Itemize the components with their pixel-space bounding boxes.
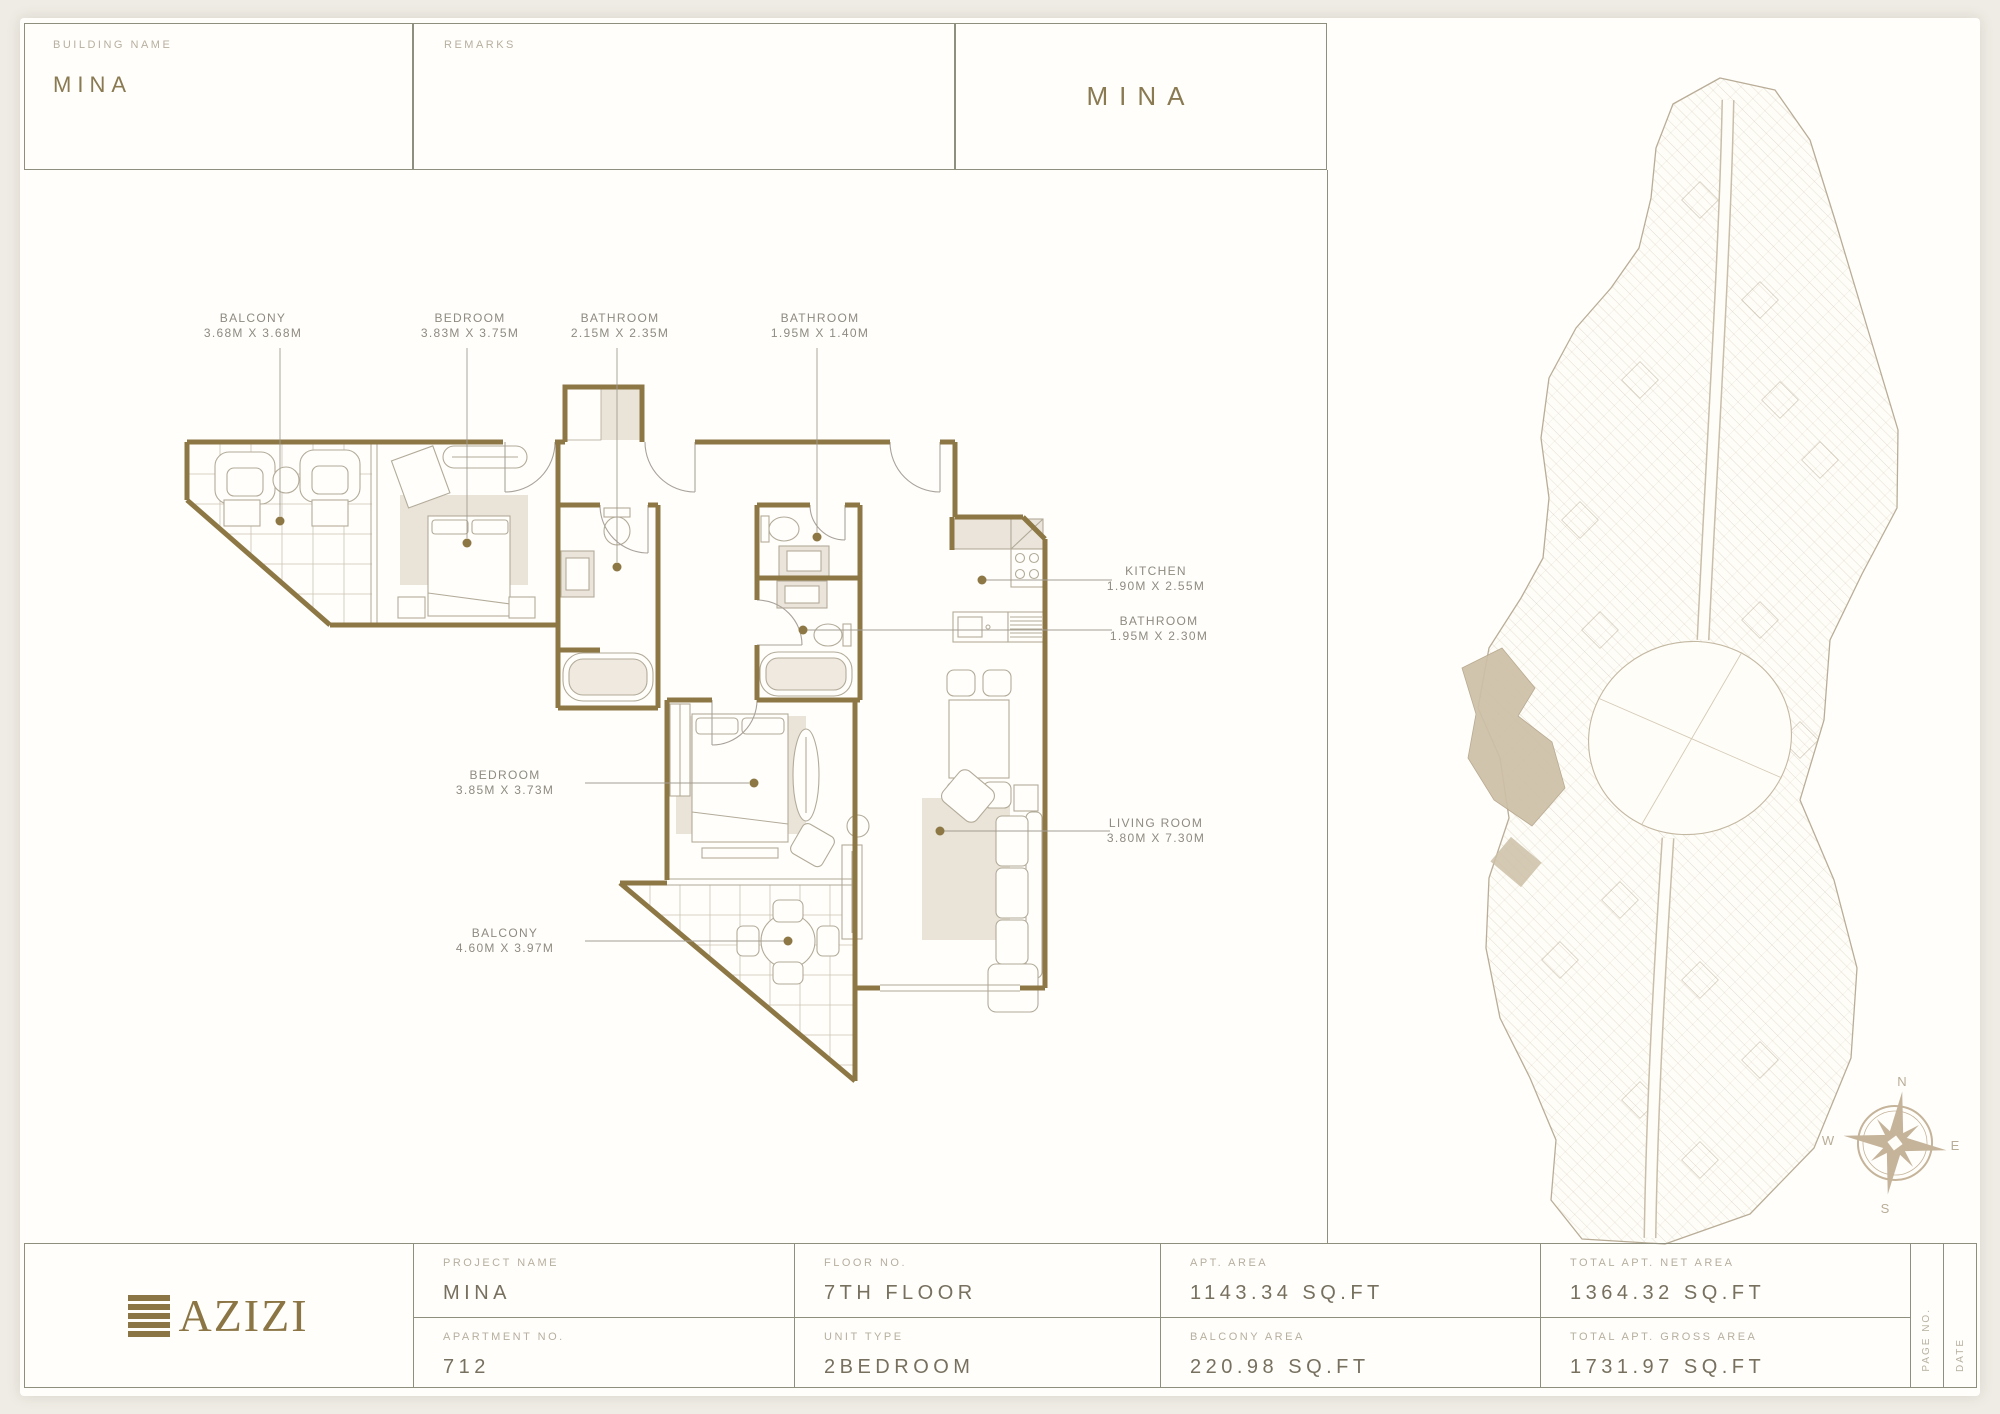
total-net-label: TOTAL APT. NET AREA (1570, 1257, 1734, 1269)
total-gross-label: TOTAL APT. GROSS AREA (1570, 1331, 1757, 1343)
footer-divider-1 (413, 1243, 414, 1388)
paper-sheet (20, 18, 1980, 1396)
footer-divider-4 (1540, 1243, 1541, 1388)
balcony-area-value: 220.98 SQ.FT (1190, 1356, 1370, 1379)
floor-no-value: 7TH FLOOR (824, 1282, 977, 1305)
room-label-bedroom-2: BEDROOM 3.85M X 3.73M (419, 768, 591, 798)
apartment-no-label: APARTMENT NO. (443, 1331, 565, 1343)
unit-type-value: 2BEDROOM (824, 1356, 974, 1379)
room-label-bathroom-2: BATHROOM 1.95M X 1.40M (734, 311, 906, 341)
area-divider (1327, 170, 1328, 1243)
room-label-bathroom-1: BATHROOM 2.15M X 2.35M (534, 311, 706, 341)
unit-type-label: UNIT TYPE (824, 1331, 904, 1343)
azizi-logo: AZIZI (24, 1243, 413, 1388)
balcony-area-label: BALCONY AREA (1190, 1331, 1305, 1343)
apartment-no-value: 712 (443, 1356, 490, 1379)
azizi-bars-icon (128, 1295, 170, 1337)
project-name-label: PROJECT NAME (443, 1257, 559, 1269)
room-label-living-room: LIVING ROOM 3.80M X 7.30M (1070, 816, 1242, 846)
floor-no-label: FLOOR NO. (824, 1257, 907, 1269)
building-name-box: BUILDING NAME MINA (24, 23, 413, 170)
date-column: DATE (1943, 1243, 1977, 1388)
apt-area-label: APT. AREA (1190, 1257, 1268, 1269)
room-label-bedroom-1: BEDROOM 3.83M X 3.75M (384, 311, 556, 341)
total-net-value: 1364.32 SQ.FT (1570, 1282, 1765, 1305)
page-no-column: PAGE NO. (1910, 1243, 1943, 1388)
remarks-box: REMARKS (413, 23, 955, 170)
room-label-balcony-2: BALCONY 4.60M X 3.97M (419, 926, 591, 956)
footer-divider-2 (794, 1243, 795, 1388)
total-gross-value: 1731.97 SQ.FT (1570, 1356, 1765, 1379)
apt-area-value: 1143.34 SQ.FT (1190, 1282, 1384, 1305)
room-label-balcony-1: BALCONY 3.68M X 3.68M (167, 311, 339, 341)
brand-logo: MINA (955, 23, 1327, 170)
building-name-label: BUILDING NAME (53, 39, 172, 51)
footer-row-divider (413, 1317, 1910, 1318)
room-label-bathroom-3: BATHROOM 1.95M X 2.30M (1073, 614, 1245, 644)
project-name-value: MINA (443, 1282, 511, 1305)
building-name-value: MINA (53, 72, 132, 98)
floorplan-sheet: BUILDING NAME MINA REMARKS MINA (0, 0, 2000, 1414)
room-label-kitchen: KITCHEN 1.90M X 2.55M (1070, 564, 1242, 594)
footer-divider-3 (1160, 1243, 1161, 1388)
remarks-label: REMARKS (444, 39, 516, 51)
